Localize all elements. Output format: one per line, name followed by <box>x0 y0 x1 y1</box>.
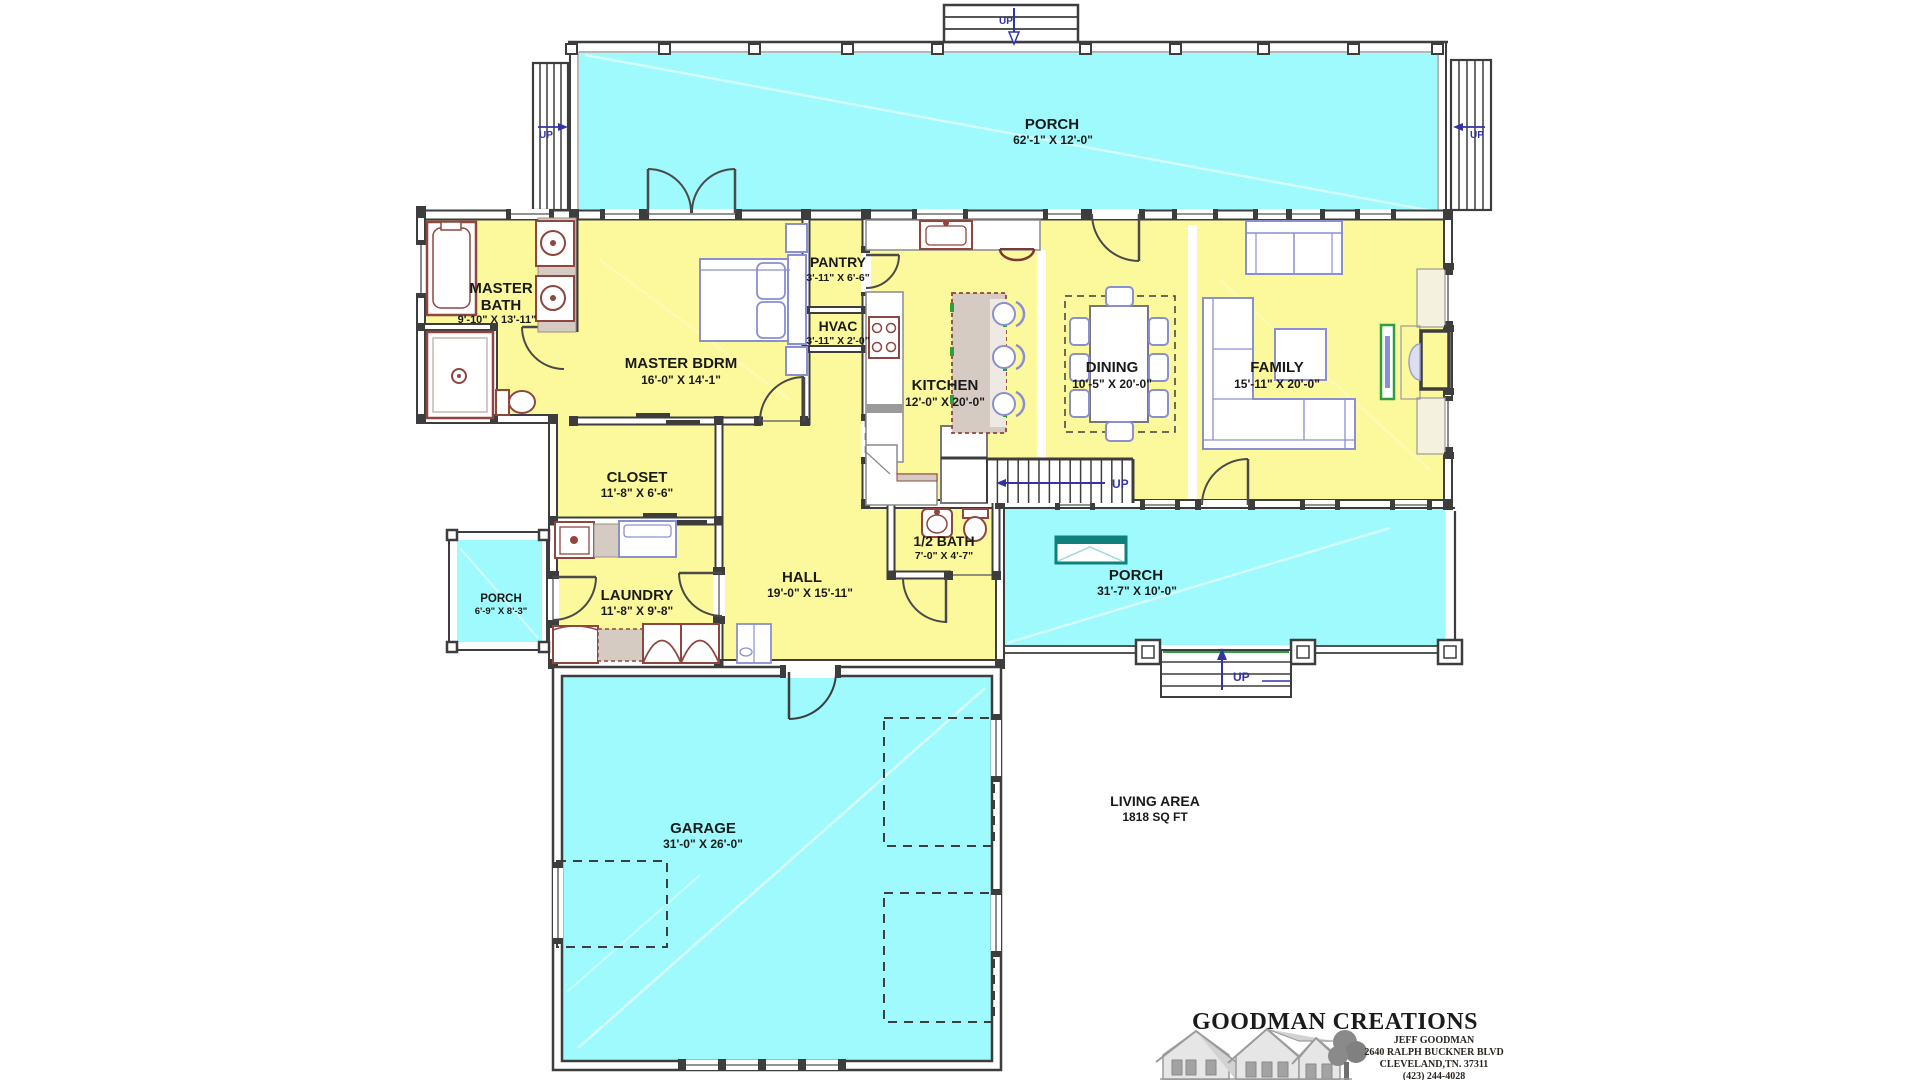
svg-text:MASTER: MASTER <box>469 280 533 297</box>
svg-text:15'-11" X 20'-0": 15'-11" X 20'-0" <box>1234 377 1320 391</box>
svg-text:PORCH: PORCH <box>1025 116 1079 133</box>
svg-text:2640 RALPH BUCKNER BLVD: 2640 RALPH BUCKNER BLVD <box>1364 1047 1503 1058</box>
svg-text:UP: UP <box>539 130 553 141</box>
svg-text:MASTER BDRM: MASTER BDRM <box>625 355 738 372</box>
svg-text:BATH: BATH <box>481 297 522 314</box>
svg-text:LAUNDRY: LAUNDRY <box>601 587 674 604</box>
svg-text:GOODMAN CREATIONS: GOODMAN CREATIONS <box>1192 1009 1478 1035</box>
svg-text:31'-0" X 26'-0": 31'-0" X 26'-0" <box>663 837 743 851</box>
svg-text:KITCHEN: KITCHEN <box>912 377 979 394</box>
svg-text:3'-11" X 2'-0": 3'-11" X 2'-0" <box>806 335 869 347</box>
svg-text:12'-0" X 20'-0": 12'-0" X 20'-0" <box>905 395 985 409</box>
svg-text:31'-7" X 10'-0": 31'-7" X 10'-0" <box>1097 584 1177 598</box>
svg-text:19'-0" X 15'-11": 19'-0" X 15'-11" <box>767 586 853 600</box>
svg-text:UP: UP <box>1470 130 1484 141</box>
svg-text:FAMILY: FAMILY <box>1250 359 1304 376</box>
svg-text:11'-8" X 9'-8": 11'-8" X 9'-8" <box>601 604 673 618</box>
svg-text:(423) 244-4028: (423) 244-4028 <box>1403 1071 1466 1080</box>
svg-text:HALL: HALL <box>782 569 822 586</box>
svg-text:1818 SQ FT: 1818 SQ FT <box>1122 810 1188 824</box>
svg-text:10'-5" X 20'-0": 10'-5" X 20'-0" <box>1072 377 1152 391</box>
svg-text:PANTRY: PANTRY <box>810 254 867 270</box>
svg-text:9'-10" X 13'-11": 9'-10" X 13'-11" <box>458 314 537 326</box>
svg-text:16'-0" X 14'-1": 16'-0" X 14'-1" <box>641 373 721 387</box>
svg-text:1/2 BATH: 1/2 BATH <box>913 533 974 549</box>
svg-text:6'-9" X 8'-3": 6'-9" X 8'-3" <box>475 606 528 617</box>
svg-text:62'-1" X 12'-0": 62'-1" X 12'-0" <box>1013 133 1093 147</box>
svg-text:PORCH: PORCH <box>1109 567 1163 584</box>
svg-text:UP: UP <box>999 16 1013 27</box>
svg-text:CLOSET: CLOSET <box>607 469 668 486</box>
svg-text:11'-8" X 6'-6": 11'-8" X 6'-6" <box>601 486 673 500</box>
svg-text:PORCH: PORCH <box>480 593 522 605</box>
svg-text:DINING: DINING <box>1086 359 1139 376</box>
svg-text:LIVING AREA: LIVING AREA <box>1110 793 1200 809</box>
svg-text:JEFF GOODMAN: JEFF GOODMAN <box>1394 1035 1475 1046</box>
svg-text:HVAC: HVAC <box>819 318 858 334</box>
svg-text:UP: UP <box>1112 477 1129 491</box>
svg-text:CLEVELAND,TN. 37311: CLEVELAND,TN. 37311 <box>1380 1059 1489 1070</box>
svg-text:UP: UP <box>1233 670 1250 684</box>
svg-text:GARAGE: GARAGE <box>670 820 736 837</box>
svg-text:3'-11" X 6'-6": 3'-11" X 6'-6" <box>806 272 869 284</box>
svg-text:7'-0" X 4'-7": 7'-0" X 4'-7" <box>915 550 973 562</box>
